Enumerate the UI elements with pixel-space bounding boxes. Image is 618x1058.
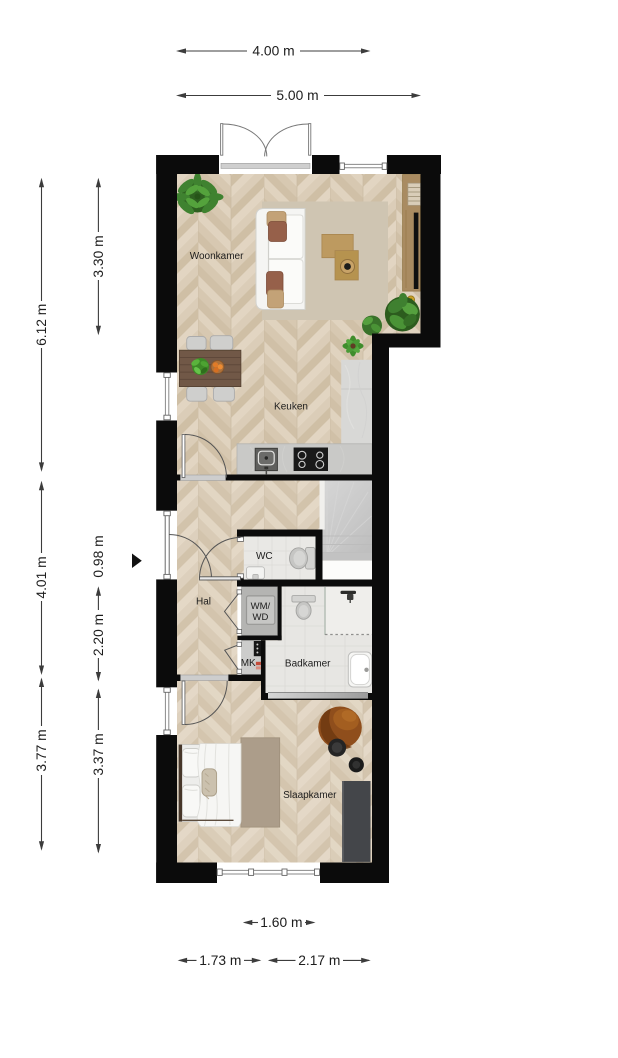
svg-text:5.00 m: 5.00 m	[276, 88, 318, 103]
svg-text:2.20 m: 2.20 m	[91, 614, 106, 656]
svg-text:1.60 m: 1.60 m	[260, 915, 302, 930]
svg-text:0.98 m: 0.98 m	[91, 535, 106, 577]
svg-text:WM/: WM/	[251, 601, 271, 612]
svg-text:WC: WC	[256, 551, 273, 562]
svg-text:MK: MK	[241, 658, 256, 669]
svg-text:Badkamer: Badkamer	[285, 659, 331, 670]
svg-text:3.77 m: 3.77 m	[34, 729, 49, 771]
svg-text:3.37 m: 3.37 m	[91, 733, 106, 775]
svg-text:6.12 m: 6.12 m	[34, 304, 49, 346]
svg-text:2.17 m: 2.17 m	[298, 953, 340, 968]
svg-text:Hal: Hal	[196, 597, 211, 608]
svg-text:Keuken: Keuken	[274, 402, 308, 413]
svg-text:WD: WD	[252, 612, 268, 623]
svg-text:1.73 m: 1.73 m	[199, 953, 241, 968]
svg-text:Slaapkamer: Slaapkamer	[283, 790, 337, 801]
svg-text:Woonkamer: Woonkamer	[190, 251, 244, 262]
svg-text:3.30 m: 3.30 m	[91, 235, 106, 277]
svg-text:4.00 m: 4.00 m	[252, 44, 294, 59]
svg-text:4.01 m: 4.01 m	[34, 556, 49, 598]
